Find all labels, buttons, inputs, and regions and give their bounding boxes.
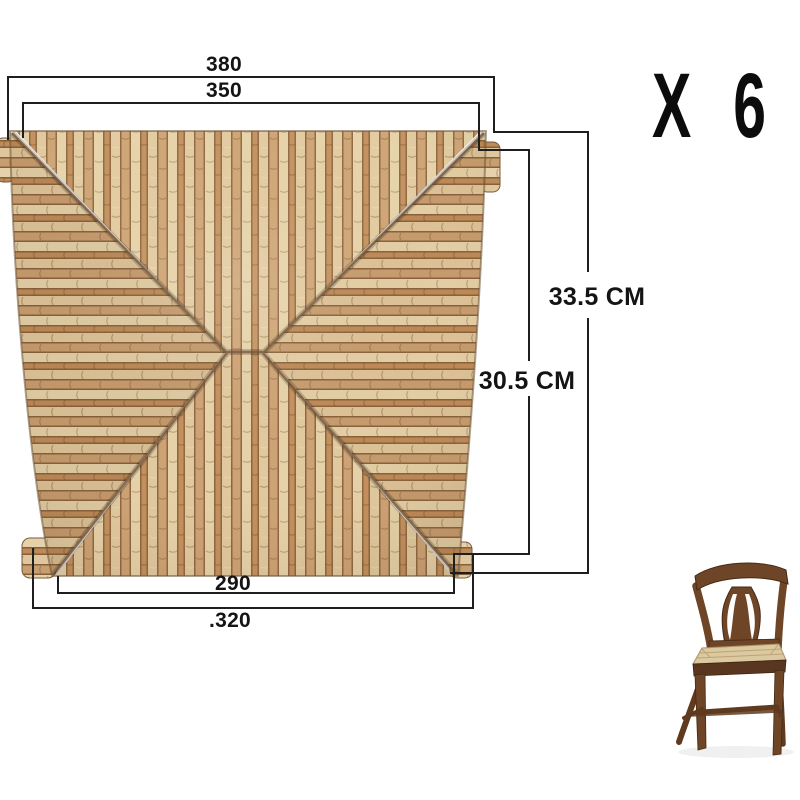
dimension-line (587, 318, 589, 574)
dimension-label-top-outer: 380 (164, 53, 284, 77)
dimension-line (587, 131, 589, 272)
dimension-label-bottom-inner: 290 (173, 572, 293, 596)
seat-weave (0, 120, 510, 590)
dimension-label-top-inner: 350 (164, 79, 284, 103)
dimension-line (493, 76, 495, 133)
dimension-line (493, 131, 589, 133)
dimension-line (528, 396, 530, 554)
dimension-line (472, 553, 474, 609)
quantity-label: X 6 (652, 54, 779, 159)
dimension-line (478, 149, 530, 151)
dimension-line (32, 548, 34, 609)
dimension-line (22, 102, 24, 138)
dimension-label-side-outer: 33.5 CM (527, 283, 667, 312)
dimension-line (478, 102, 480, 151)
dimension-label-bottom-outer: .320 (170, 609, 290, 633)
dimension-line (453, 553, 530, 555)
dimension-label-side-inner: 30.5 CM (457, 367, 597, 396)
chair-photo (662, 552, 800, 767)
dimension-line (57, 576, 59, 594)
dimension-line (528, 149, 530, 361)
dimension-line (7, 76, 9, 140)
chair (678, 563, 794, 758)
dimension-line (450, 572, 589, 574)
dimension-line (453, 553, 455, 594)
product-dimension-diagram: 380 350 33.5 CM 30.5 CM 290 .320 X 6 (0, 0, 800, 800)
